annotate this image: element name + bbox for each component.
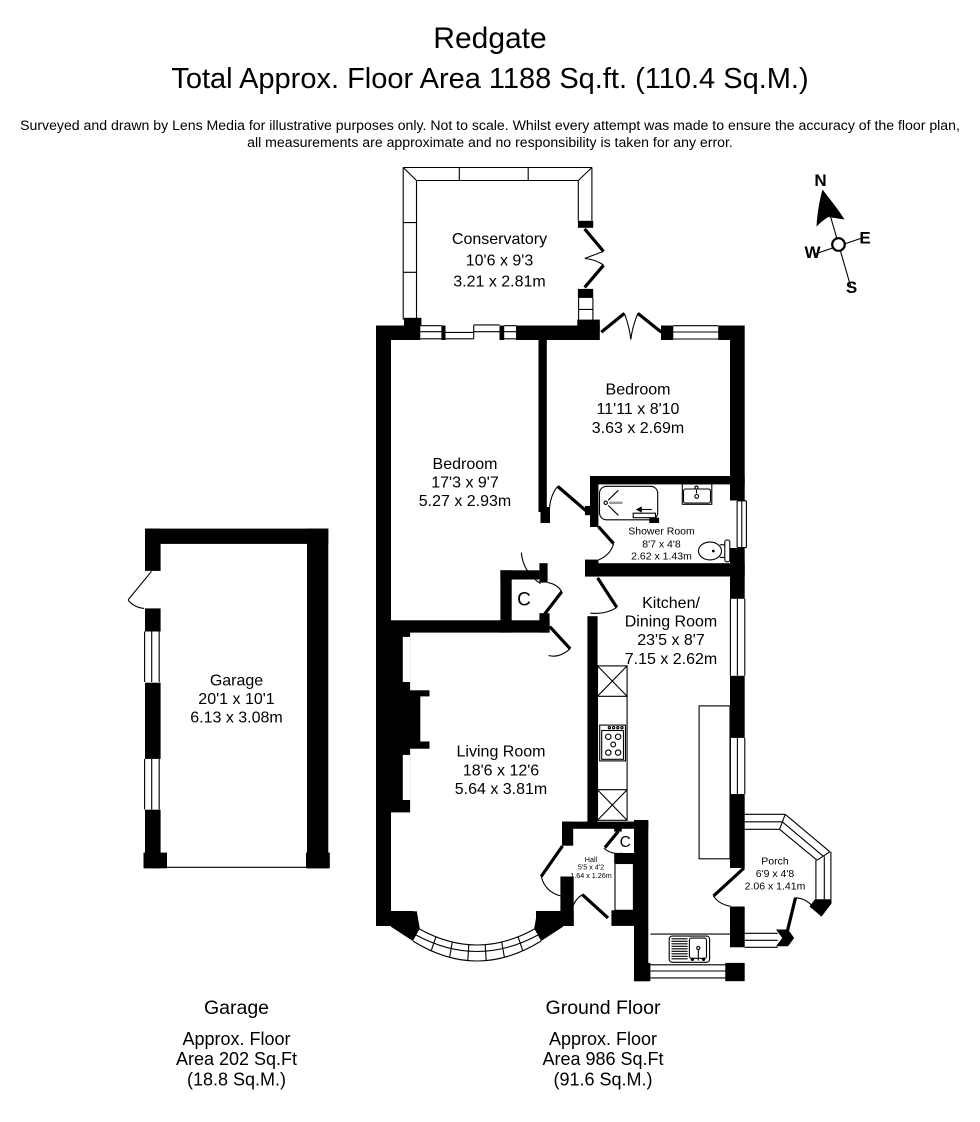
svg-text:(18.8 Sq.M.): (18.8 Sq.M.) bbox=[187, 1070, 286, 1090]
svg-text:W: W bbox=[804, 243, 821, 262]
svg-text:Dining Room: Dining Room bbox=[625, 614, 717, 631]
svg-text:N: N bbox=[814, 171, 826, 190]
svg-text:20'1 x 10'1: 20'1 x 10'1 bbox=[198, 691, 274, 708]
svg-text:17'3 x 9'7: 17'3 x 9'7 bbox=[431, 475, 499, 492]
svg-text:Approx. Floor: Approx. Floor bbox=[549, 1029, 657, 1049]
svg-text:6.13 x 3.08m: 6.13 x 3.08m bbox=[190, 710, 283, 727]
svg-text:Garage: Garage bbox=[204, 997, 269, 1019]
svg-text:Redgate: Redgate bbox=[433, 22, 546, 55]
svg-text:23'5 x 8'7: 23'5 x 8'7 bbox=[637, 632, 705, 649]
svg-text:(91.6 Sq.M.): (91.6 Sq.M.) bbox=[553, 1070, 652, 1090]
svg-text:E: E bbox=[859, 229, 870, 248]
svg-text:18'6 x 12'6: 18'6 x 12'6 bbox=[463, 763, 539, 780]
svg-text:S: S bbox=[846, 278, 857, 297]
svg-text:Area 986 Sq.Ft: Area 986 Sq.Ft bbox=[542, 1049, 663, 1069]
svg-text:Garage: Garage bbox=[210, 673, 263, 690]
svg-text:Surveyed and drawn by Lens Med: Surveyed and drawn by Lens Media for ill… bbox=[20, 117, 960, 133]
svg-text:Living Room: Living Room bbox=[457, 744, 546, 761]
svg-text:Area 202 Sq.Ft: Area 202 Sq.Ft bbox=[176, 1049, 297, 1069]
svg-text:Ground Floor: Ground Floor bbox=[546, 997, 661, 1019]
svg-text:Porch: Porch bbox=[761, 856, 789, 868]
svg-text:C: C bbox=[620, 834, 631, 851]
svg-text:11'11 x 8'10: 11'11 x 8'10 bbox=[597, 401, 680, 418]
svg-text:Kitchen/: Kitchen/ bbox=[642, 595, 700, 612]
svg-text:2.06 x 1.41m: 2.06 x 1.41m bbox=[745, 881, 806, 893]
svg-text:5.64 x 3.81m: 5.64 x 3.81m bbox=[455, 781, 548, 798]
svg-text:8'7 x 4'8: 8'7 x 4'8 bbox=[642, 539, 681, 551]
svg-text:10'6 x 9'3: 10'6 x 9'3 bbox=[466, 253, 534, 270]
svg-text:Approx. Floor: Approx. Floor bbox=[182, 1029, 290, 1049]
svg-text:7.15 x 2.62m: 7.15 x 2.62m bbox=[625, 651, 718, 668]
svg-text:5.27 x 2.93m: 5.27 x 2.93m bbox=[419, 493, 512, 510]
svg-text:C: C bbox=[517, 590, 531, 611]
svg-text:Bedroom: Bedroom bbox=[606, 382, 671, 399]
svg-text:all measurements are approxima: all measurements are approximate and no … bbox=[247, 134, 733, 150]
svg-text:Bedroom: Bedroom bbox=[433, 456, 498, 473]
svg-text:3.63 x 2.69m: 3.63 x 2.69m bbox=[592, 420, 685, 437]
svg-text:6'9 x 4'8: 6'9 x 4'8 bbox=[756, 868, 795, 880]
svg-text:Total Approx. Floor Area 1188: Total Approx. Floor Area 1188 Sq.ft. (11… bbox=[171, 63, 808, 95]
svg-text:3.21 x 2.81m: 3.21 x 2.81m bbox=[453, 274, 546, 291]
svg-text:Conservatory: Conservatory bbox=[452, 231, 547, 248]
svg-text:1.64 x 1.26m: 1.64 x 1.26m bbox=[570, 871, 612, 880]
svg-text:Shower Room: Shower Room bbox=[628, 526, 695, 538]
svg-text:2.62 x 1.43m: 2.62 x 1.43m bbox=[631, 551, 692, 563]
